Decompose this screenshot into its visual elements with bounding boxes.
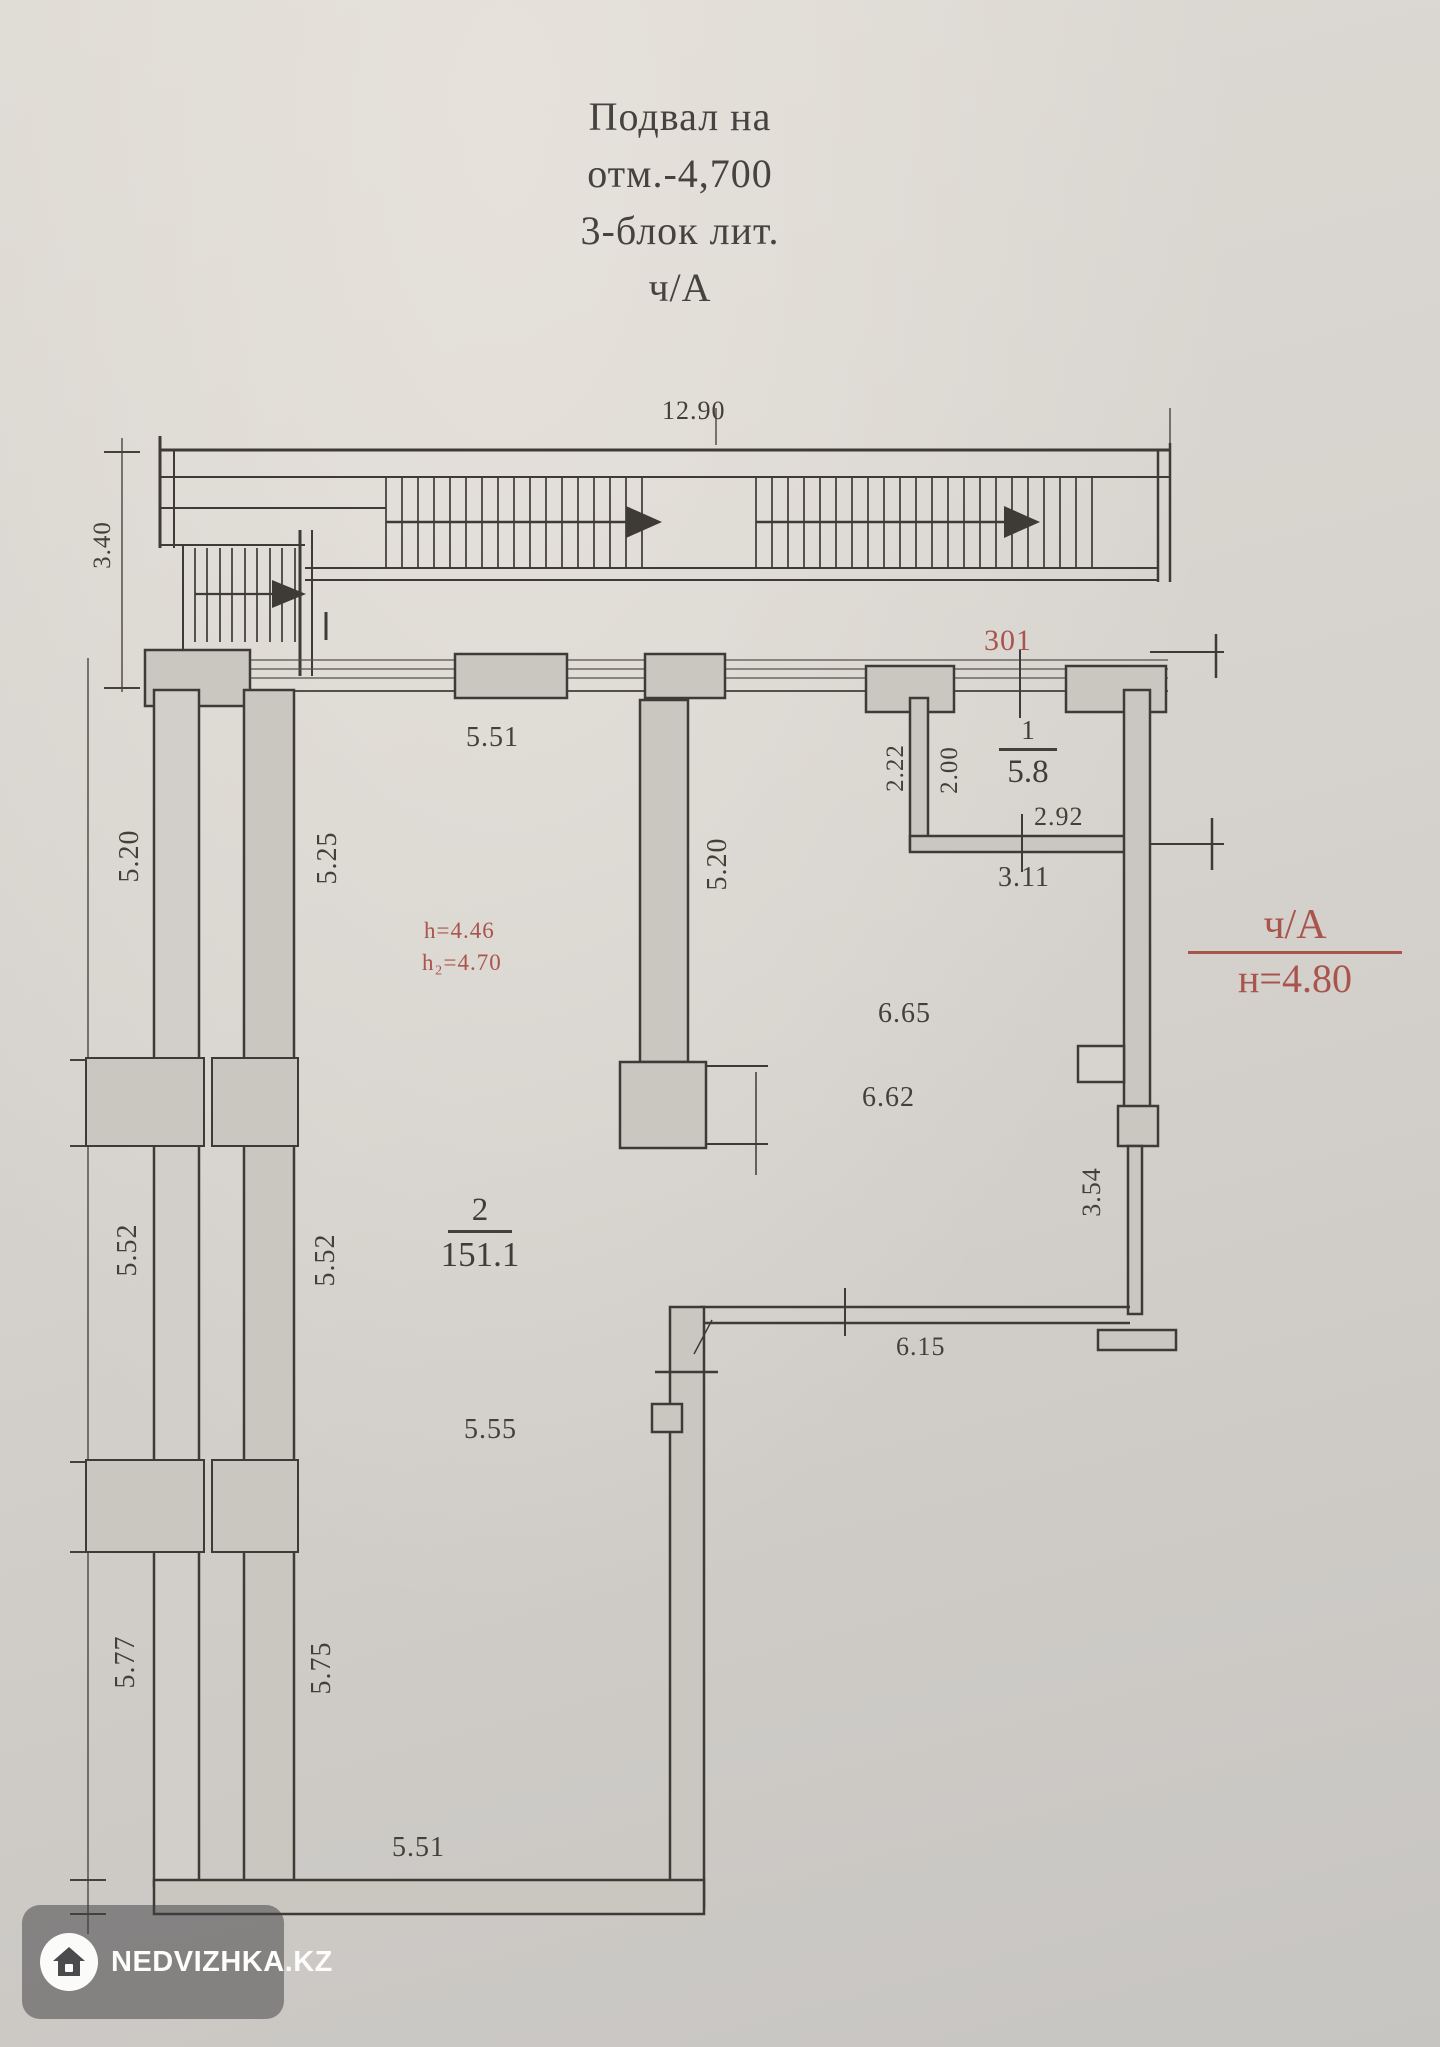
dim-col-inner-1: 5.25 [312,832,344,885]
dim-hall-width-2: 6.62 [862,1082,915,1114]
floorplan: 12.90 3.40 5.51 5.20 5.25 5.20 2.22 2.00… [0,0,1440,2047]
room1-fraction-bar [999,748,1057,751]
dim-col-inner-2: 5.52 [310,1234,342,1287]
section-mark-label: ч/А [1188,902,1402,948]
dim-col-inner-3: 5.75 [306,1642,338,1695]
dim-room1-inner-height: 2.00 [936,746,964,794]
dim-col-left-2: 5.52 [112,1224,144,1277]
section-mark-underline [1188,951,1402,954]
arrow-flight-1 [626,506,662,538]
room2-area: 151.1 [428,1235,532,1275]
dim-bottom-width: 5.51 [392,1832,445,1864]
stair-direction-arrows [386,506,1040,538]
watermark-badge: NEDVIZHKA.KZ [22,1905,284,2019]
floorplan-linework [0,0,1440,2047]
middle-column-ticks [706,1066,768,1175]
dim-col-left-1: 5.20 [114,830,146,883]
room1-number: 1 [985,714,1071,746]
watermark-text: NEDVIZHKA.KZ [111,1946,333,1979]
dim-col-left-3: 5.77 [110,1636,142,1689]
dim-col-mid-1: 5.20 [702,838,734,891]
middle-wall [620,700,706,1148]
left-walls [154,690,294,1886]
room-301-label: 301 [984,624,1032,658]
dim-right-wall-height: 3.54 [1077,1167,1107,1217]
section-mark-block: ч/А н=4.80 [1188,902,1402,1002]
dim-room1-width: 2.92 [1034,802,1084,832]
arrow-flight-2 [1004,506,1040,538]
dim-room2-mid-width: 5.55 [464,1414,517,1446]
dim-top-width: 12.90 [662,396,726,426]
bottom-room-right-wall [652,1307,704,1907]
dim-room1-width-outer: 3.11 [998,862,1050,894]
dim-hall-width-1: 6.65 [878,998,931,1030]
room2-label: 2 151.1 [428,1192,532,1275]
watermark-logo-circle [40,1933,98,1991]
section-height-label: н=4.80 [1188,956,1402,1002]
dim-room2-top-width: 5.51 [466,722,519,754]
room1-area: 5.8 [985,753,1071,791]
height-note-1: h=4.46 [424,918,495,944]
height-note-2: h₂=4.70 [422,950,502,976]
lower-right-wall [700,1288,1130,1336]
room2-number: 2 [428,1192,532,1228]
dim-left-stair-height: 3.40 [89,521,117,569]
dim-room1-left-height: 2.22 [882,744,910,792]
house-icon [52,1946,86,1978]
stair-small-arrow [195,580,306,608]
dimension-ticks [70,452,140,1914]
scanned-floorplan-page: Подвал на отм.-4,700 3-блок лит. ч/А [0,0,1440,2047]
dim-hall-bottom-width: 6.15 [896,1332,946,1362]
room2-fraction-bar [448,1230,512,1233]
right-wall [1078,690,1176,1350]
room1-label: 1 5.8 [985,714,1071,791]
